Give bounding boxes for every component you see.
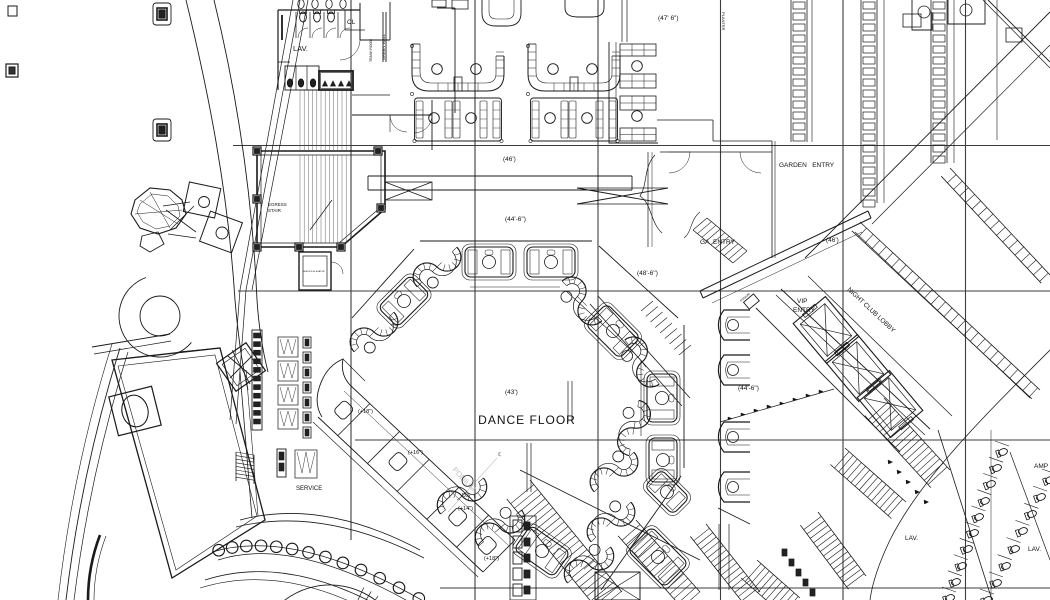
svg-text:(46'): (46'): [503, 156, 516, 163]
svg-text:ENTRY: ENTRY: [793, 307, 816, 314]
svg-text:LAV.: LAV.: [1028, 546, 1041, 553]
svg-text:DJ: DJ: [462, 493, 469, 499]
svg-text:LAV.: LAV.: [293, 44, 308, 53]
svg-text:VIP: VIP: [797, 298, 807, 305]
svg-text:CL: CL: [347, 19, 356, 26]
svg-text:GREEN WALL: GREEN WALL: [381, 33, 386, 60]
svg-text:(44'-6"): (44'-6"): [505, 216, 526, 223]
svg-text:AMP: AMP: [1034, 463, 1048, 470]
svg-text:SERVICE ELEVATOR: SERVICE ELEVATOR: [303, 270, 325, 273]
svg-text:DANCE FLOOR: DANCE FLOOR: [478, 413, 576, 427]
svg-text:(+18"): (+18"): [484, 556, 499, 562]
svg-text:(+16"): (+16"): [408, 450, 423, 456]
svg-text:(43'): (43'): [505, 389, 518, 396]
svg-text:(44'-6"): (44'-6"): [738, 385, 759, 392]
svg-text:ℂ: ℂ: [498, 452, 502, 458]
svg-text:(+14"): (+14"): [458, 506, 473, 512]
svg-text:SERVICE: SERVICE: [296, 486, 322, 492]
svg-text:TRASH ROOM: TRASH ROOM: [369, 39, 373, 62]
svg-text:(48'-6"): (48'-6"): [637, 270, 658, 277]
svg-text:LAV.: LAV.: [905, 535, 918, 542]
svg-text:GARDEN ENTRY: GARDEN ENTRY: [779, 162, 835, 169]
svg-text:PLANTER: PLANTER: [721, 12, 726, 31]
svg-text:(+18"): (+18"): [358, 409, 373, 415]
svg-text:EGRESS: EGRESS: [268, 202, 287, 207]
svg-text:(47' 6"): (47' 6"): [658, 15, 679, 22]
svg-text:STAIR: STAIR: [268, 208, 282, 213]
